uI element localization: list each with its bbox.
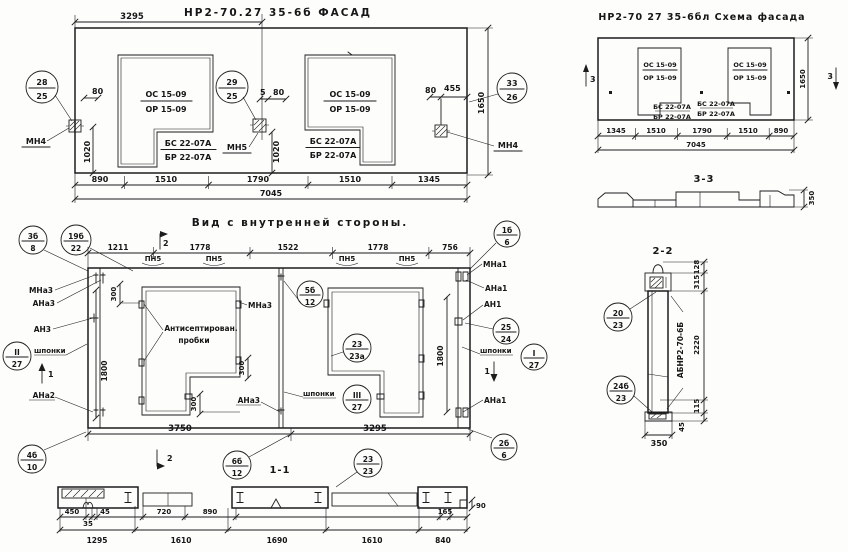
svg-text:23: 23: [613, 321, 623, 330]
inner-window-1: [139, 287, 241, 415]
label-mn5: МН5: [223, 143, 251, 153]
svg-text:ПН5: ПН5: [399, 255, 416, 263]
anchor-mark-mn4-right: [432, 125, 450, 137]
facade-dim-3295: 3295: [72, 12, 265, 140]
facade-window2-os-label: ОС 15-09: [329, 90, 370, 99]
svg-text:3295: 3295: [363, 424, 387, 434]
svg-text:1778: 1778: [190, 243, 211, 252]
svg-text:III: III: [353, 391, 362, 400]
svg-text:22: 22: [71, 244, 81, 253]
callout-2b-6: 2б 6: [491, 434, 517, 460]
svg-text:1800: 1800: [436, 346, 445, 367]
s11-piece-5: [418, 487, 467, 508]
svg-text:II: II: [14, 348, 20, 357]
svg-text:ПН5: ПН5: [145, 255, 162, 263]
facade-drawing: НР2-70.27 35-6б ФАСАД 3295 ОС 15-09 ОР 1…: [22, 7, 527, 203]
svg-text:23: 23: [363, 455, 373, 464]
label-mn4-left: МН4: [22, 137, 50, 147]
svg-text:2: 2: [167, 454, 173, 463]
section-2-2-drawing: 2-2 128 315 2220 115 45 350 20 23 24б 23: [604, 246, 708, 448]
label-shponki-right: шпонки: [480, 347, 512, 355]
schema-title: НР2-70 27 35-6бл Схема фасада: [598, 12, 805, 23]
svg-text:128: 128: [693, 260, 701, 275]
svg-text:6б: 6б: [232, 457, 242, 466]
facade-dim-80-455: 80 455: [425, 84, 470, 124]
svg-text:1295: 1295: [87, 536, 108, 545]
svg-text:35: 35: [83, 520, 93, 528]
svg-text:1: 1: [48, 370, 54, 379]
callout-23-23: 23 23: [336, 449, 382, 487]
section-marker-2-top: 2: [160, 231, 169, 249]
svg-text:3: 3: [827, 72, 833, 81]
callout-29-25: 29 25: [216, 71, 248, 103]
facade-dim-80-left: 80: [81, 87, 104, 101]
label-ana2: АНа2: [33, 391, 55, 400]
section-3-3: 3-3 350: [598, 174, 816, 210]
svg-text:45: 45: [678, 422, 686, 432]
section-marker-1-left: 1: [39, 363, 55, 383]
svg-text:1522: 1522: [278, 243, 299, 252]
svg-text:28: 28: [36, 78, 48, 87]
svg-text:1610: 1610: [171, 536, 192, 545]
facade-panel-outline: [75, 28, 467, 173]
svg-text:300: 300: [190, 397, 198, 412]
svg-text:90: 90: [476, 502, 486, 510]
svg-text:756: 756: [442, 243, 458, 252]
callout-3b-8: 3б 8: [19, 226, 47, 254]
svg-text:165: 165: [438, 508, 453, 516]
facade-dim-1020-mid: 1020: [269, 129, 281, 176]
section-3-3-title: 3-3: [693, 174, 714, 185]
svg-text:315: 315: [693, 275, 701, 290]
svg-text:1650: 1650: [477, 91, 486, 114]
svg-text:33: 33: [506, 79, 517, 88]
facade-dim-1020-left: 1020: [83, 124, 96, 176]
svg-text:29: 29: [226, 78, 238, 87]
svg-text:ПН5: ПН5: [206, 255, 223, 263]
svg-text:23: 23: [363, 467, 373, 476]
svg-text:840: 840: [435, 536, 451, 545]
svg-text:АБНР2-70-6Б: АБНР2-70-6Б: [676, 322, 685, 378]
schema-dim-1650: 1650: [794, 35, 813, 123]
svg-text:1778: 1778: [368, 243, 389, 252]
inner-left-edge-anchors: [90, 273, 105, 416]
label-ana1-bottom: АНа1: [484, 396, 506, 405]
inner-right-labels: 1б 6 МНа1 АНа1 АН1 25 24 шпонки I 27 1 А…: [462, 221, 547, 460]
svg-text:890: 890: [774, 127, 789, 135]
section-marker-2-bottom: 2: [157, 450, 173, 470]
s22-element: [645, 265, 672, 421]
svg-text:890: 890: [92, 175, 109, 184]
svg-text:ОР 15-09: ОР 15-09: [733, 74, 767, 82]
svg-text:1800: 1800: [100, 361, 109, 382]
facade-window-1: ОС 15-09 ОР 15-09 БС 22-07А БР 22-07А: [118, 55, 216, 167]
inner-title: Вид с внутренней стороны.: [192, 217, 408, 229]
svg-text:350: 350: [808, 191, 816, 206]
label-mn4-right: МН4: [494, 141, 522, 151]
svg-text:12: 12: [305, 298, 315, 307]
svg-text:27: 27: [12, 360, 22, 369]
callout-24b-23: 24б 23: [607, 376, 652, 412]
label-an3: АН3: [34, 325, 51, 334]
inner-dim-1800-left: 1800: [93, 287, 109, 421]
callout-19b-22: 19б 22: [61, 225, 91, 255]
svg-text:23а: 23а: [349, 352, 365, 361]
label-ana3: АНа3: [33, 299, 55, 308]
svg-text:1510: 1510: [646, 127, 666, 135]
svg-text:80: 80: [273, 88, 285, 97]
schema-section-marker-left: 3: [583, 64, 596, 86]
svg-text:ОС 15-09: ОС 15-09: [643, 61, 677, 69]
svg-text:1: 1: [484, 367, 490, 376]
label-mna1: МНа1: [483, 260, 507, 269]
svg-text:БС 22-07А: БС 22-07А: [653, 103, 691, 111]
callout-4b-10: 4б 10: [18, 432, 86, 473]
svg-text:19б: 19б: [68, 232, 84, 241]
callout-5b-12: 5б 12: [297, 281, 323, 307]
inner-right-edge-anchors: [455, 272, 468, 417]
svg-text:25: 25: [501, 323, 511, 332]
svg-text:6: 6: [501, 451, 506, 460]
s11-piece-1: [58, 487, 138, 508]
schema-bottom-dims: 1345 1510 1790 1510 890 7045: [595, 120, 797, 153]
svg-text:300: 300: [110, 287, 118, 302]
svg-text:1790: 1790: [692, 127, 712, 135]
label-shponki-mid: шпонки: [303, 390, 335, 398]
callout-28-25: 28 25: [26, 71, 58, 103]
svg-text:Антисептирован.: Антисептирован.: [164, 324, 237, 333]
svg-text:450: 450: [65, 508, 80, 516]
technical-drawing-canvas: НР2-70.27 35-6б ФАСАД 3295 ОС 15-09 ОР 1…: [0, 0, 848, 552]
svg-text:7045: 7045: [260, 189, 283, 198]
svg-text:1345: 1345: [606, 127, 626, 135]
svg-text:БР 22-07А: БР 22-07А: [165, 153, 212, 162]
svg-text:1510: 1510: [155, 175, 178, 184]
svg-text:20: 20: [613, 309, 623, 318]
svg-text:300: 300: [238, 361, 246, 376]
section-1-1-title: 1-1: [269, 465, 290, 476]
label-mna3: МНа3: [29, 286, 53, 295]
svg-text:1211: 1211: [108, 243, 129, 252]
svg-text:25: 25: [226, 92, 238, 101]
svg-text:ОС 15-09: ОС 15-09: [733, 61, 767, 69]
svg-text:2220: 2220: [693, 335, 701, 355]
inner-middle-labels: МНа3 5б 12 АНа3 шпонки III 27 23 23а: [236, 281, 371, 413]
svg-text:1690: 1690: [267, 536, 288, 545]
svg-text:350: 350: [651, 439, 668, 448]
svg-text:3: 3: [590, 75, 596, 84]
callout-33-26: 33 26: [497, 73, 527, 103]
schema-section-marker-right: 3: [827, 68, 839, 90]
inner-left-labels: МНа3 АНа3 АН3 II 27 шпонки 1 АНа2: [3, 275, 101, 412]
svg-text:10: 10: [27, 463, 37, 472]
callout-II-27: II 27: [3, 342, 31, 370]
svg-text:1020: 1020: [272, 140, 281, 163]
s22-element-label: АБНР2-70-6Б: [667, 296, 685, 409]
label-shponki-left: шпонки: [34, 347, 66, 355]
inner-view-drawing: Вид с внутренней стороны. 3б 8 19б 22 12…: [3, 217, 547, 487]
pn5-labels: ПН5 ПН5 ПН5 ПН5: [142, 255, 418, 266]
schema-window-2: ОС 15-09 ОР 15-09 БС 22-07А БР 22-07А: [697, 48, 771, 118]
svg-text:ОР 15-09: ОР 15-09: [643, 74, 677, 82]
svg-text:1345: 1345: [418, 175, 441, 184]
facade-bottom-dims: 890 1510 1790 1510 1345 7045: [72, 173, 470, 203]
svg-text:2: 2: [163, 239, 169, 248]
facade-window2-bs-label: БС 22-07А: [310, 137, 357, 146]
svg-text:27: 27: [352, 403, 362, 412]
section-1-1-drawing: 450 35 45 720 890 165 90 1295 1610 1690 …: [57, 487, 486, 545]
callout-III-27: III 27: [343, 385, 371, 413]
svg-text:3295: 3295: [120, 12, 144, 22]
svg-text:БР 22-07А: БР 22-07А: [653, 113, 691, 121]
inner-window-2: [324, 288, 424, 417]
svg-text:МН4: МН4: [498, 141, 519, 150]
facade-leader-lines: [47, 94, 498, 147]
svg-text:720: 720: [157, 508, 172, 516]
svg-text:МН4: МН4: [26, 137, 47, 146]
svg-text:1510: 1510: [339, 175, 362, 184]
svg-text:3750: 3750: [168, 424, 192, 434]
callout-25-24: 25 24: [493, 318, 519, 344]
svg-text:26: 26: [506, 93, 518, 102]
svg-text:БР 22-07А: БР 22-07А: [697, 110, 735, 118]
label-ana1-top: АНа1: [485, 284, 507, 293]
s11-piece-3: [232, 487, 328, 508]
facade-window1-bs-label: БС 22-07А: [165, 139, 212, 148]
svg-text:80: 80: [92, 87, 104, 96]
svg-text:4б: 4б: [27, 451, 37, 460]
svg-text:МН5: МН5: [227, 143, 248, 152]
svg-text:25: 25: [36, 92, 48, 101]
label-ana3-mid: АНа3: [238, 396, 260, 405]
svg-text:1020: 1020: [83, 140, 92, 163]
callout-23-23a: 23 23а: [343, 334, 371, 362]
s11-dims-row1: 450 35 45 720 890 165 90: [57, 497, 486, 532]
svg-text:ОР 15-09: ОР 15-09: [329, 105, 370, 114]
svg-text:1650: 1650: [799, 69, 807, 89]
svg-text:2б: 2б: [499, 439, 509, 448]
svg-text:3б: 3б: [28, 232, 38, 241]
svg-text:1610: 1610: [362, 536, 383, 545]
svg-text:1790: 1790: [247, 175, 270, 184]
svg-text:1510: 1510: [738, 127, 758, 135]
label-an1: АН1: [484, 300, 501, 309]
anchor-mark-mn5: [250, 119, 269, 132]
s11-dims-row2: 1295 1610 1690 1610 840: [57, 527, 470, 545]
svg-text:24б: 24б: [613, 382, 629, 391]
svg-text:455: 455: [444, 84, 461, 93]
callout-I-27: I 27: [521, 344, 547, 370]
facade-title: НР2-70.27 35-6б ФАСАД: [184, 7, 372, 19]
svg-text:23: 23: [616, 394, 626, 403]
svg-text:ПН5: ПН5: [339, 255, 356, 263]
svg-text:12: 12: [232, 469, 242, 478]
svg-text:7045: 7045: [686, 141, 706, 149]
svg-text:5б: 5б: [305, 286, 315, 295]
svg-text:890: 890: [203, 508, 218, 516]
svg-text:23: 23: [352, 340, 362, 349]
svg-text:8: 8: [30, 244, 35, 253]
s11-piece-2: [143, 493, 192, 506]
s22-dim-350: 350: [642, 421, 675, 448]
inner-dim-300-bottom: 300: [190, 391, 240, 417]
s11-piece-4: [332, 493, 417, 506]
inner-dim-300-top: 300: [110, 281, 140, 307]
svg-text:6: 6: [504, 238, 509, 247]
svg-text:пробки: пробки: [178, 336, 209, 345]
svg-text:80: 80: [425, 86, 437, 95]
inner-dim-1800-right: 1800: [436, 294, 450, 415]
svg-text:БР 22-07А: БР 22-07А: [310, 151, 357, 160]
facade-window-2: ОС 15-09 ОР 15-09 БС 22-07А БР 22-07А: [305, 52, 395, 165]
facade-window1-os-label: ОС 15-09: [145, 90, 186, 99]
label-mna3-mid: МНа3: [248, 301, 272, 310]
schema-joint-marks: [609, 91, 790, 94]
svg-text:1б: 1б: [502, 226, 512, 235]
svg-text:115: 115: [693, 399, 701, 414]
svg-text:I: I: [533, 349, 536, 358]
svg-text:ОР 15-09: ОР 15-09: [145, 105, 186, 114]
schema-window-1: ОС 15-09 ОР 15-09 БС 22-07А БР 22-07А: [638, 48, 691, 121]
svg-text:24: 24: [501, 335, 511, 344]
section-marker-1-right: 1: [484, 362, 497, 382]
schema-drawing: НР2-70 27 35-6бл Схема фасада ОС 15-09 О…: [583, 12, 839, 210]
facade-dim-5-80: 5 80: [257, 88, 289, 102]
section-2-2-title: 2-2: [652, 246, 673, 257]
svg-text:БС 22-07А: БС 22-07А: [697, 100, 735, 108]
callout-1b-6: 1б 6: [494, 221, 520, 247]
antiseptic-note: Антисептирован. пробки: [144, 304, 238, 361]
svg-text:27: 27: [529, 361, 539, 370]
svg-text:45: 45: [100, 508, 110, 516]
